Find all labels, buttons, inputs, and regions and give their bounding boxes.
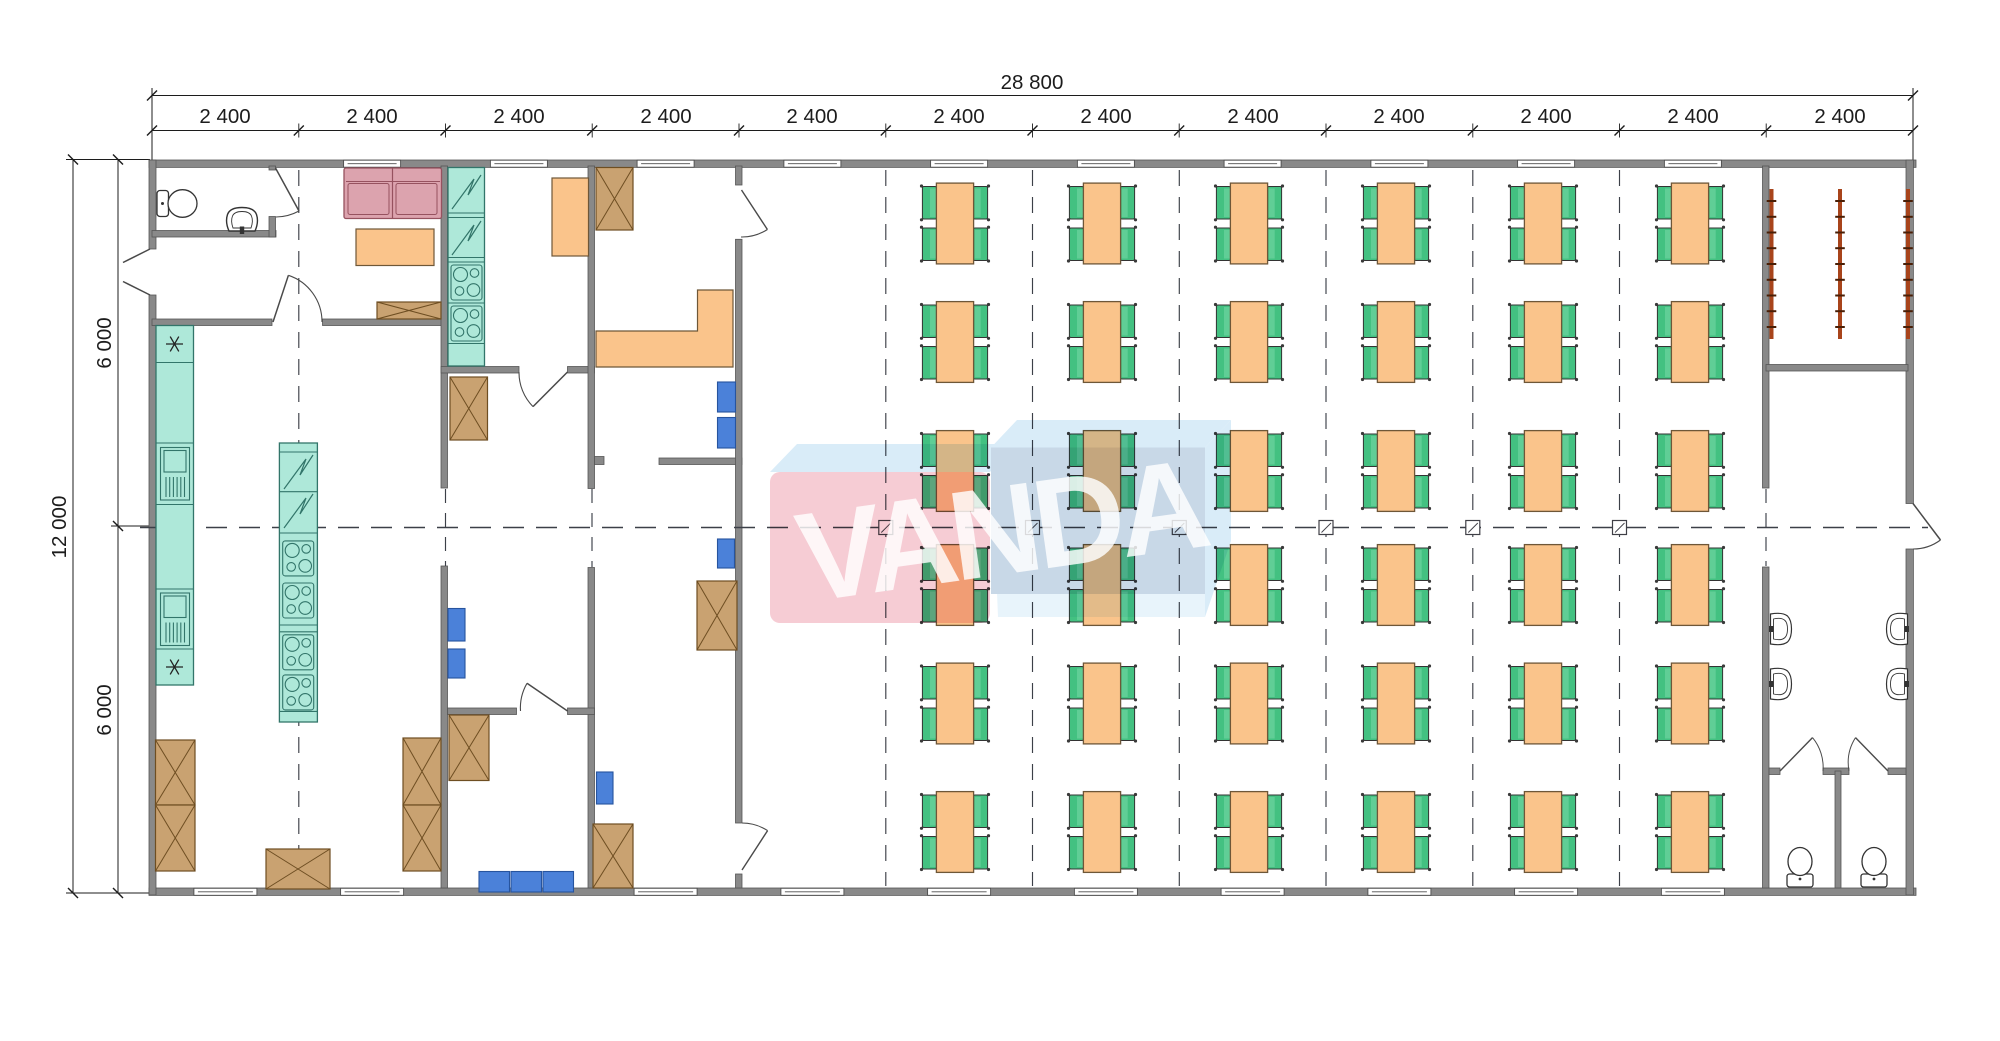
svg-text:2 400: 2 400 — [346, 105, 397, 128]
svg-text:2 400: 2 400 — [640, 105, 691, 128]
svg-text:6 000: 6 000 — [93, 317, 116, 368]
svg-text:2 400: 2 400 — [1520, 105, 1571, 128]
svg-text:2 400: 2 400 — [1227, 105, 1278, 128]
svg-text:6 000: 6 000 — [93, 684, 116, 735]
svg-text:2 400: 2 400 — [1814, 105, 1865, 128]
svg-text:2 400: 2 400 — [1080, 105, 1131, 128]
svg-text:28 800: 28 800 — [1001, 71, 1064, 94]
svg-text:2 400: 2 400 — [493, 105, 544, 128]
svg-text:2 400: 2 400 — [1667, 105, 1718, 128]
svg-text:2 400: 2 400 — [199, 105, 250, 128]
svg-text:12 000: 12 000 — [48, 496, 71, 559]
svg-text:2 400: 2 400 — [1373, 105, 1424, 128]
svg-text:2 400: 2 400 — [786, 105, 837, 128]
svg-text:2 400: 2 400 — [933, 105, 984, 128]
